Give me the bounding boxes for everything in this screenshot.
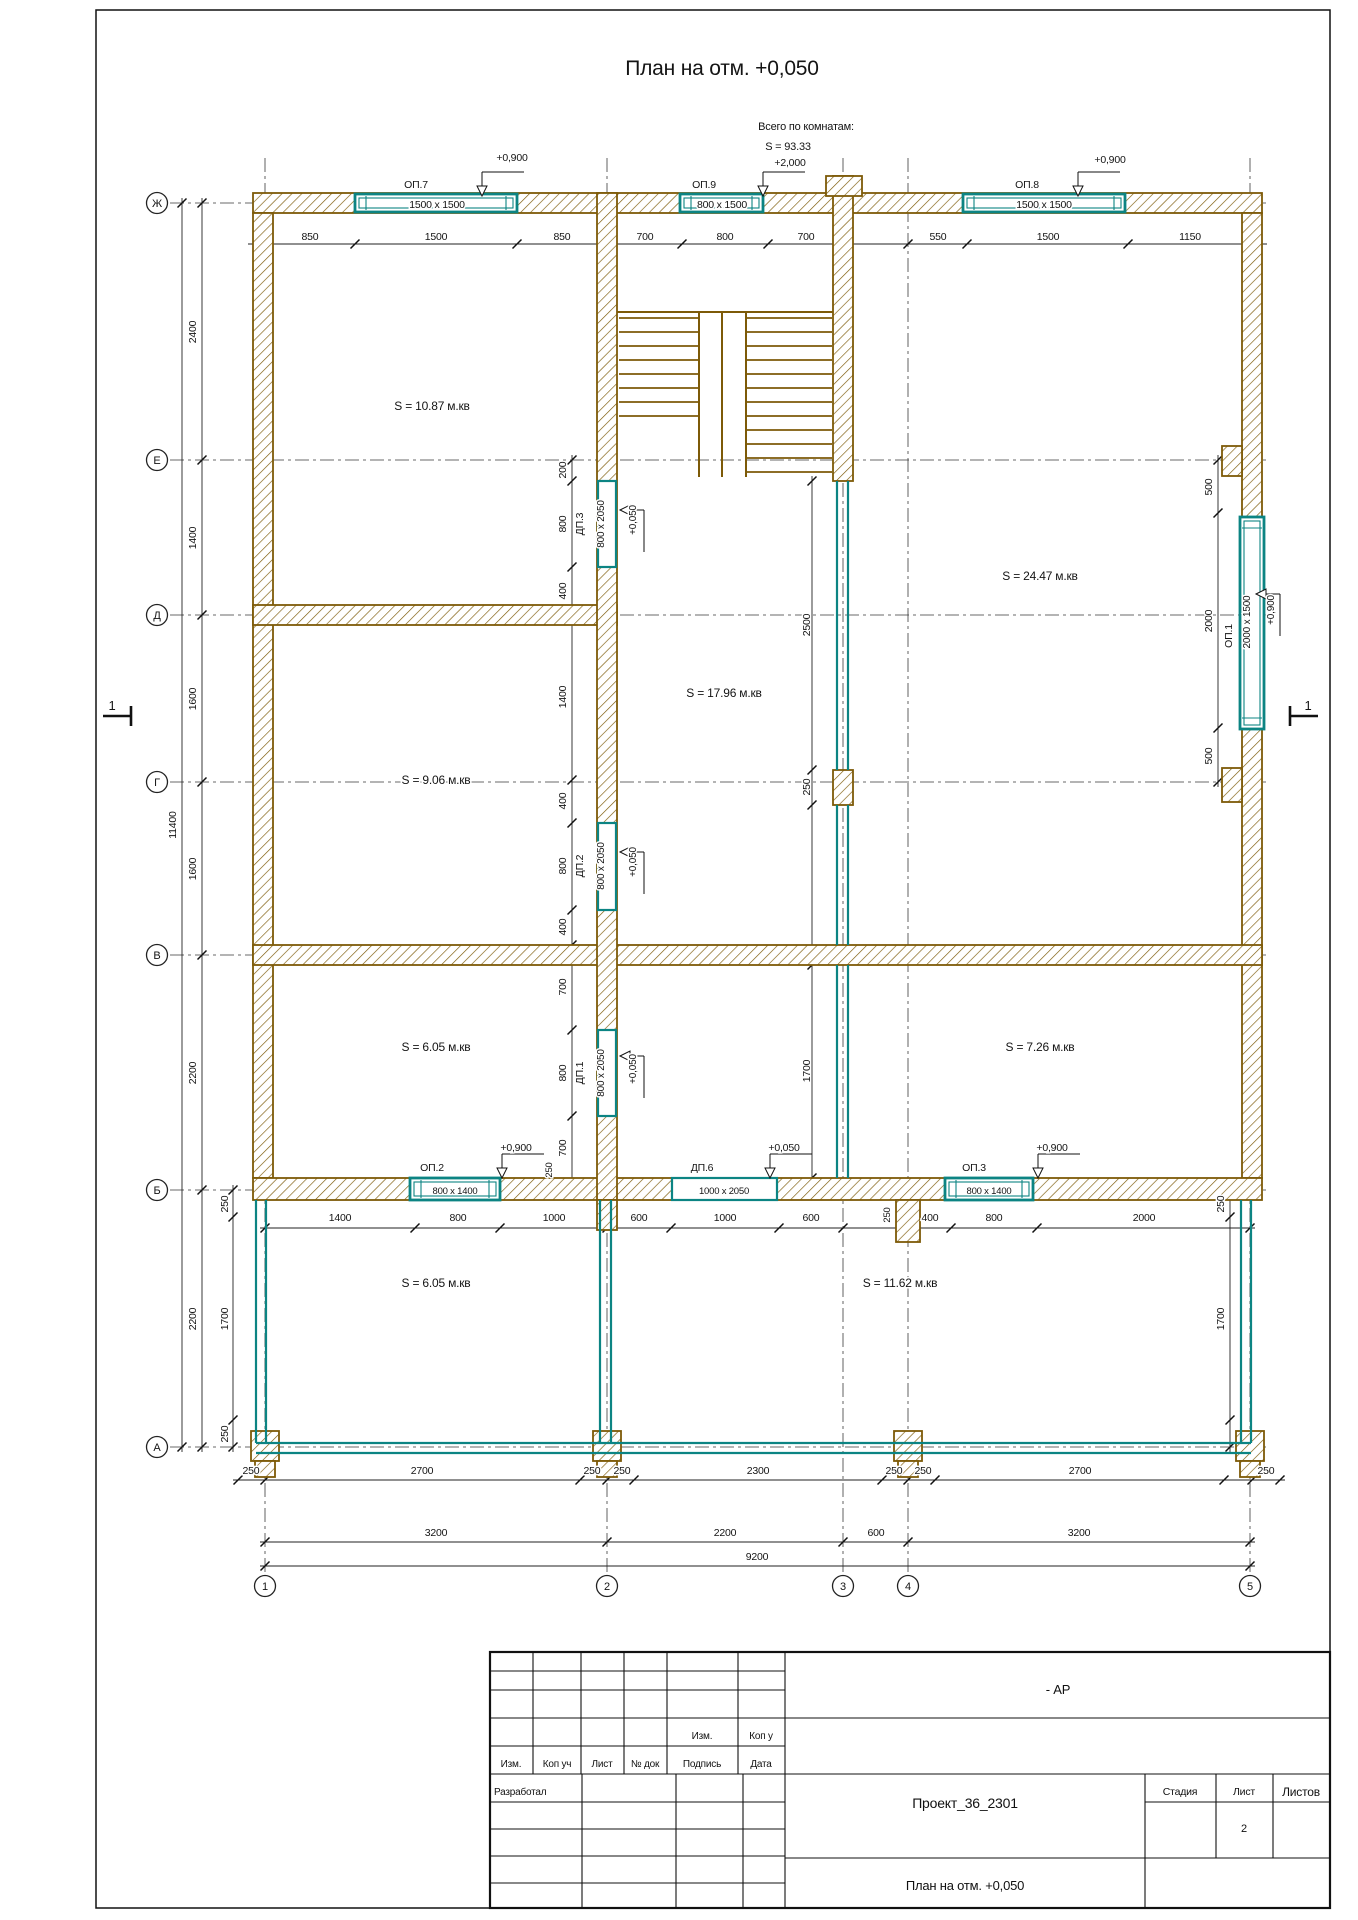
axis-bubbles-layer: ЖЕДГВБА12345 <box>147 193 1261 1597</box>
op7-size: 1500 х 1500 <box>409 199 465 211</box>
level-marker-icon <box>1033 1154 1080 1178</box>
dim-left-6: 2200 <box>187 1307 199 1330</box>
tb-col-izm: Изм. <box>501 1759 522 1770</box>
tb-developed-by: Разработал <box>494 1786 547 1798</box>
dim-ax2-4: 1400 <box>557 685 569 708</box>
op1-label: ОП.1 <box>1223 624 1235 648</box>
wall <box>833 770 853 805</box>
op3-level: +0,900 <box>1036 1142 1068 1154</box>
dim-botA-2: 2700 <box>411 1465 434 1477</box>
level-marker-icon <box>497 1154 544 1178</box>
op9-size: 800 х 1500 <box>697 199 747 211</box>
wall <box>253 213 273 1178</box>
room-area-2: S = 24.47 м.кв <box>1002 569 1077 583</box>
op3-label: ОП.3 <box>962 1162 986 1174</box>
dim-left-sub-1: 250 <box>219 1195 231 1212</box>
note-rooms-total-1: Всего по комнатам: <box>758 121 854 133</box>
tb-code-suffix: - АР <box>1046 1682 1070 1697</box>
dim-left-sub-2: 1700 <box>219 1307 231 1330</box>
axis-row-label-А: А <box>153 1442 161 1454</box>
dim-left-2: 1400 <box>187 526 199 549</box>
section-mark-left: 1 <box>108 698 115 713</box>
dp3-label: ДП.3 <box>574 512 586 535</box>
tb-col-list: Лист <box>592 1759 614 1770</box>
stairs-layer <box>617 312 833 477</box>
dim-botA-4: 250 <box>614 1465 631 1477</box>
floor-plan-svg: План на отм. +0,050Всего по комнатам:S =… <box>0 0 1358 1920</box>
dim-top-9: 1150 <box>1179 231 1201 243</box>
dp1-level: +0,050 <box>628 1054 639 1084</box>
dim-belowB-6: 600 <box>803 1212 820 1224</box>
op9-label: ОП.9 <box>692 179 716 191</box>
dim-left-5: 2200 <box>187 1061 199 1084</box>
op1-size: 2000 х 1500 <box>1242 595 1253 648</box>
drawing-sheet: План на отм. +0,050Всего по комнатам:S =… <box>0 0 1358 1920</box>
tb-drawing-name: План на отм. +0,050 <box>906 1878 1024 1893</box>
dim-top-3: 850 <box>554 231 571 243</box>
axis-row-label-Ж: Ж <box>152 198 162 210</box>
tb-sheet-label: Лист <box>1233 1786 1255 1798</box>
dp2-level: +0,050 <box>628 847 639 877</box>
dp6-label: ДП.6 <box>691 1162 714 1174</box>
axis-col-label-1: 1 <box>262 1581 268 1593</box>
level-op7: +0,900 <box>496 152 528 164</box>
drawing-title: План на отм. +0,050 <box>625 57 819 80</box>
dim-top-5: 800 <box>717 231 734 243</box>
dim-left-total: 11400 <box>167 811 179 839</box>
tb-project-name: Проект_36_2301 <box>912 1795 1018 1811</box>
dp2-size: 800 х 2050 <box>596 842 607 890</box>
dim-belowB-2: 800 <box>450 1212 467 1224</box>
dim-botA-1: 250 <box>243 1465 260 1477</box>
dim-top-8: 1500 <box>1037 231 1060 243</box>
dim-right-1: 500 <box>1203 478 1215 495</box>
axis-col-label-4: 4 <box>905 1581 911 1593</box>
dim-belowB-3: 1000 <box>543 1212 566 1224</box>
op1-level: +0,900 <box>1266 595 1277 625</box>
tb-sheet-number: 2 <box>1241 1823 1247 1835</box>
dim-botA-3: 250 <box>584 1465 601 1477</box>
dim-left-sub-3: 250 <box>219 1425 231 1442</box>
level-top-middle: +2,000 <box>774 157 806 169</box>
dim-belowB-9: 2000 <box>1133 1212 1156 1224</box>
dp1-label: ДП.1 <box>574 1061 586 1084</box>
op2-level: +0,900 <box>500 1142 532 1154</box>
dp1-size: 800 х 2050 <box>596 1049 607 1097</box>
room-area-6: S = 7.26 м.кв <box>1006 1040 1075 1054</box>
dim-ax2-7: 400 <box>557 918 569 935</box>
dim-left-4: 1600 <box>187 857 199 880</box>
room-area-7: S = 6.05 м.кв <box>402 1276 471 1290</box>
dim-botA-7: 250 <box>915 1465 932 1477</box>
section-mark-right: 1 <box>1304 698 1311 713</box>
window-openings-layer <box>355 194 1264 1200</box>
dim-ax3-1: 2500 <box>801 613 813 636</box>
dim-ax2-1: 200 <box>557 461 569 478</box>
dim-botB-1: 3200 <box>425 1527 448 1539</box>
tb-upper-kop: Коп у <box>749 1731 773 1742</box>
dim-botB-3: 600 <box>868 1527 885 1539</box>
dim-left-3: 1600 <box>187 687 199 710</box>
wall <box>894 1431 922 1461</box>
dim-top-6: 700 <box>798 231 815 243</box>
dim-top-7: 550 <box>930 231 947 243</box>
dim-ax4-pier: 250 <box>882 1207 893 1222</box>
dim-top-1: 850 <box>302 231 319 243</box>
dim-belowB-1: 1400 <box>329 1212 352 1224</box>
axis-grid-layer <box>170 158 1268 1576</box>
dp3-size: 800 х 2050 <box>596 500 607 548</box>
wall <box>833 176 853 481</box>
dim-ax2-9: 800 <box>557 1064 569 1081</box>
dp2-label: ДП.2 <box>574 854 586 877</box>
op8-size: 1500 х 1500 <box>1016 199 1072 211</box>
dim-botB-4: 3200 <box>1068 1527 1091 1539</box>
op2-label: ОП.2 <box>420 1162 444 1174</box>
wall <box>896 1200 920 1242</box>
dim-ax2-3: 400 <box>557 582 569 599</box>
wall <box>826 176 862 196</box>
dim-ax3-2: 250 <box>801 778 813 795</box>
axis-col-label-2: 2 <box>604 1581 610 1593</box>
level-marker-icon <box>765 1154 812 1178</box>
room-area-8: S = 11.62 м.кв <box>863 1276 938 1290</box>
room-area-4: S = 9.06 м.кв <box>402 773 471 787</box>
dim-top-4: 700 <box>637 231 654 243</box>
tb-stage-label: Стадия <box>1163 1786 1198 1798</box>
tb-col-data: Дата <box>750 1759 772 1770</box>
dim-right-sub-1: 250 <box>1215 1195 1227 1212</box>
dim-belowB-4: 600 <box>631 1212 648 1224</box>
dim-right-3: 500 <box>1203 747 1215 764</box>
dim-top-2: 1500 <box>425 231 448 243</box>
op7-label: ОП.7 <box>404 179 428 191</box>
axis-row-label-Е: Е <box>153 455 160 467</box>
dim-belowB-8: 800 <box>986 1212 1003 1224</box>
tb-upper-izm: Изм. <box>692 1731 713 1742</box>
dim-belowB-5: 1000 <box>714 1212 737 1224</box>
wall <box>253 945 1262 965</box>
dim-botA-5: 2300 <box>747 1465 770 1477</box>
op2-size: 800 х 1400 <box>432 1186 477 1197</box>
axis-row-label-В: В <box>153 950 160 962</box>
dim-ax2-11: 250 <box>544 1162 555 1177</box>
dim-ax2-2: 800 <box>557 515 569 532</box>
dim-botB-2: 2200 <box>714 1527 737 1539</box>
dim-ax2-10: 700 <box>557 1139 569 1156</box>
wall <box>1222 768 1242 802</box>
dim-ax2-8: 700 <box>557 978 569 995</box>
dim-belowB-7: 400 <box>922 1212 939 1224</box>
dp6-level: +0,050 <box>768 1142 800 1154</box>
room-area-5: S = 6.05 м.кв <box>402 1040 471 1054</box>
op3-size: 800 х 1400 <box>966 1186 1011 1197</box>
axis-col-label-5: 5 <box>1247 1581 1253 1593</box>
wall <box>253 605 617 625</box>
annotations-layer: План на отм. +0,050Всего по комнатам:S =… <box>108 57 1311 1563</box>
dim-botA-8: 2700 <box>1069 1465 1092 1477</box>
dim-ax3-3: 1700 <box>801 1059 813 1082</box>
glazing-layer <box>256 481 1251 1453</box>
axis-row-label-Г: Г <box>154 777 160 789</box>
room-area-3: S = 17.96 м.кв <box>686 686 761 700</box>
op8-label: ОП.8 <box>1015 179 1039 191</box>
axis-row-label-Б: Б <box>153 1185 160 1197</box>
dim-ax2-5: 400 <box>557 792 569 809</box>
level-op8: +0,900 <box>1094 154 1126 166</box>
wall <box>593 1431 621 1461</box>
dim-ax2-6: 800 <box>557 857 569 874</box>
dim-right-2: 2000 <box>1203 609 1215 632</box>
dimension-lines-layer <box>103 198 1318 1571</box>
room-area-1: S = 10.87 м.кв <box>394 399 469 413</box>
tb-col-podpis: Подпись <box>683 1759 721 1770</box>
axis-row-label-Д: Д <box>153 610 161 622</box>
dim-right-sub-2: 1700 <box>1215 1307 1227 1330</box>
wall <box>1222 446 1242 476</box>
dp6-size: 1000 х 2050 <box>699 1186 749 1197</box>
dim-botA-9: 250 <box>1258 1465 1275 1477</box>
dim-total-9200: 9200 <box>746 1551 769 1563</box>
axis-col-label-3: 3 <box>840 1581 846 1593</box>
dim-left-1: 2400 <box>187 320 199 343</box>
tb-col-ndok: № док <box>631 1759 660 1770</box>
note-rooms-total-2: S = 93.33 <box>765 141 811 153</box>
tb-col-kop: Коп уч <box>543 1759 572 1770</box>
tb-sheets-label: Листов <box>1282 1785 1320 1799</box>
dp3-level: +0,050 <box>628 505 639 535</box>
dim-botA-6: 250 <box>886 1465 903 1477</box>
